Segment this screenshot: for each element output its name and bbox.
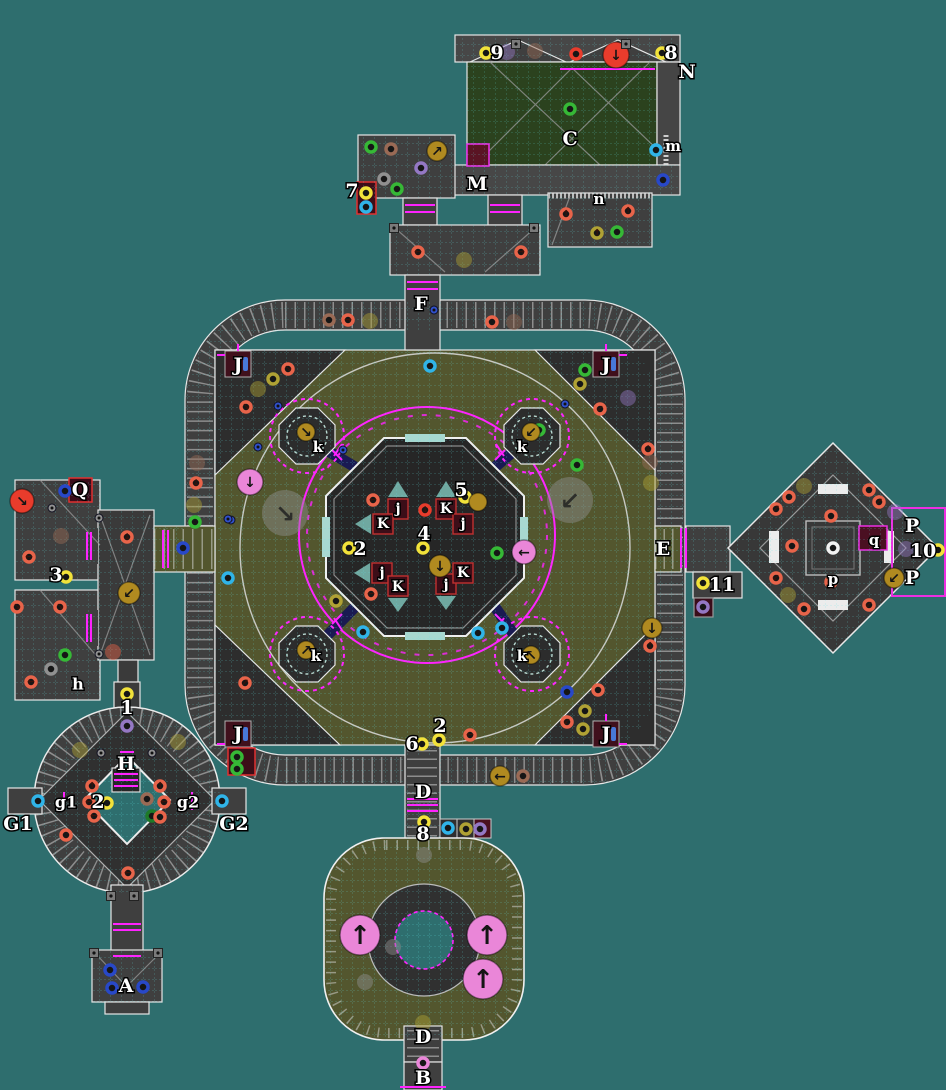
thing-ring-o [826, 511, 836, 521]
thing-ring-o: ↑ [87, 781, 97, 792]
thing-pad-gd: ↓ [429, 555, 451, 577]
svg-text:↑: ↑ [476, 921, 498, 951]
svg-text:↓: ↓ [192, 479, 200, 489]
thing-ring-g [232, 764, 242, 774]
svg-text:↙: ↙ [596, 405, 604, 415]
thing-ghost-br [506, 314, 522, 330]
thing-dot-bd [224, 515, 232, 523]
thing-ring-o: ↑ [645, 641, 655, 652]
svg-text:↘: ↘ [242, 403, 250, 413]
svg-text:↓: ↓ [244, 475, 256, 491]
thing-ring-g [232, 752, 242, 762]
thing-ring-r [571, 49, 581, 59]
map-label-k: k [311, 647, 322, 665]
map-label-9: 9 [490, 42, 503, 64]
thing-dot-bd [430, 306, 438, 314]
map-label-1: 1 [120, 697, 133, 719]
thing-ghost-gy [416, 847, 432, 863]
thing-ring-b [138, 982, 148, 992]
thing-ring-o [784, 492, 794, 502]
map-label-F: F [414, 293, 428, 315]
thing-ring-o: → [343, 315, 353, 326]
map-label-n: n [594, 190, 605, 208]
thing-ring-cy [217, 796, 227, 806]
thing-pad-pk: ↑ [340, 915, 380, 955]
thing-ring-o: ↘ [55, 602, 65, 613]
svg-text:↙: ↙ [888, 571, 900, 587]
thing-dot-bd [339, 446, 347, 454]
thing-ghost-ol [456, 252, 472, 268]
map-label-k: k [517, 438, 528, 456]
thing-ring-o: ↙ [864, 600, 874, 611]
thing-ring-ol: ↑ [592, 228, 602, 239]
thing-ghost-br [642, 454, 658, 470]
thing-knob [390, 224, 399, 233]
thing-ring-ol [331, 596, 341, 606]
thing-ring-o: ↙ [595, 404, 605, 415]
thing-ring-o: ↙ [771, 573, 781, 584]
thing-ring-o: ← [24, 552, 34, 563]
thing-ghost-ol [72, 742, 88, 758]
south-arena-pit [395, 911, 453, 969]
thing-ring-ol [268, 374, 278, 384]
map-label-Q: Q [72, 479, 89, 501]
map-label-2: 2 [91, 791, 104, 813]
map-label-m: m [665, 137, 681, 155]
svg-text:←: ← [160, 798, 168, 808]
map-label-P: P [905, 515, 919, 537]
thing-pad-pk: ← [512, 540, 536, 564]
thing-ring-y [361, 188, 371, 198]
thing-pad-r: ↘ [10, 489, 34, 513]
thing-ring-b [562, 687, 572, 697]
thing-ring-g [612, 227, 622, 237]
thing-ring-o [864, 485, 874, 495]
thing-ring-cy [473, 628, 483, 638]
thing-ring-o [799, 604, 809, 614]
map-label-7: 7 [345, 180, 358, 202]
map-label-C: C [562, 128, 577, 150]
map-label-g1: g1 [55, 793, 77, 812]
map-label-j: j [458, 516, 465, 532]
thing-ring-g [366, 142, 376, 152]
thing-ring-b [178, 543, 188, 553]
map-label-H: H [117, 753, 135, 775]
level-map-viewport: ↗↓↑↑↑←→→↘↘↙↓↘↙←↙↗←←↓↓↓↑↓←←↓↘↙↗↖↘←↓↙↘↘←↑←… [0, 0, 946, 1090]
svg-text:←: ← [518, 545, 530, 561]
thing-ring-cy [443, 823, 453, 833]
svg-text:↘: ↘ [300, 425, 312, 441]
thing-ring-cy [651, 145, 661, 155]
thing-ring-o: → [516, 247, 526, 258]
map-label-k: k [313, 438, 324, 456]
svg-text:↗: ↗ [431, 144, 443, 160]
svg-text:←: ← [369, 496, 377, 506]
svg-text:←: ← [414, 248, 422, 258]
thing-dot-gy [95, 650, 103, 658]
thing-ring-b [658, 175, 668, 185]
thing-ring-g [580, 365, 590, 375]
thing-pad-gd: ↗ [427, 141, 447, 161]
thing-dot-bd [561, 400, 569, 408]
svg-text:↘: ↘ [56, 603, 64, 613]
thing-ghost-ol [362, 313, 378, 329]
a-room-stub [105, 1002, 149, 1014]
thing-ghost-ol [170, 734, 186, 750]
svg-text:↙: ↙ [563, 718, 571, 728]
thing-ring-o: ← [159, 797, 169, 808]
thing-ring-pu [122, 721, 132, 731]
thing-ring-w [828, 543, 838, 553]
thing-ring-cy [223, 573, 233, 583]
svg-text:↓: ↓ [646, 621, 658, 637]
thing-pad-gd: ↙ [118, 582, 140, 604]
svg-text:↗: ↗ [241, 679, 249, 689]
map-label-M: M [466, 173, 487, 195]
thing-pad-gd [469, 493, 487, 511]
thing-ring-b [107, 983, 117, 993]
map-label-h: h [72, 675, 84, 694]
thing-ring-pu [416, 163, 426, 173]
thing-ring-ol [580, 706, 590, 716]
thing-pad-gd: ← [490, 766, 510, 786]
thing-ghost-gy: ↙ [547, 477, 593, 523]
map-label-2: 2 [433, 715, 446, 737]
svg-text:↓: ↓ [644, 445, 652, 455]
neck-to-one-box[interactable] [118, 660, 138, 684]
thing-ghost-ol [186, 497, 202, 513]
thing-ring-o: ↗ [771, 504, 781, 515]
thing-ring-pu [698, 602, 708, 612]
thing-ring-ol [575, 379, 585, 389]
svg-text:→: → [517, 248, 525, 258]
thing-ring-o: ← [26, 677, 36, 688]
thing-ring-g [572, 460, 582, 470]
thing-dot-bd [274, 402, 282, 410]
svg-text:↑: ↑ [646, 642, 654, 652]
map-label-11: 11 [709, 574, 735, 596]
map-label-10: 10 [910, 540, 936, 562]
thing-ring-g [190, 517, 200, 527]
thing-ring-b [60, 486, 70, 496]
svg-text:↗: ↗ [875, 498, 883, 508]
thing-ghost-ol [250, 381, 266, 397]
thing-ghost-gy: ↘ [262, 490, 308, 536]
svg-text:↑: ↑ [472, 965, 494, 995]
thing-ring-b [105, 965, 115, 975]
thing-ghost-ol [796, 478, 812, 494]
thing-ring-gy [379, 174, 389, 184]
thing-ring-o [61, 830, 71, 840]
svg-text:←: ← [124, 869, 132, 879]
thing-dot-gy [97, 749, 105, 757]
thing-ring-ol [578, 724, 588, 734]
svg-text:↑: ↑ [593, 229, 601, 239]
svg-text:←: ← [90, 812, 98, 822]
svg-text:↑: ↑ [624, 207, 632, 217]
svg-text:↓: ↓ [421, 506, 429, 516]
thing-pad-gd: ↙ [884, 568, 904, 588]
thing-dot-gy [48, 504, 56, 512]
svg-text:↙: ↙ [772, 574, 780, 584]
svg-text:↑: ↑ [562, 210, 570, 220]
map-label-G1: G1 [3, 813, 32, 835]
level-map: ↗↓↑↑↑←→→↘↘↙↓↘↙←↙↗←←↓↓↓↑↓←←↓↘↙↗↖↘←↓↙↘↘←↑←… [0, 0, 946, 1090]
svg-text:←: ← [367, 590, 375, 600]
thing-ring-o: ← [123, 868, 133, 879]
thing-ring-g [565, 104, 575, 114]
thing-ring-o [787, 541, 797, 551]
thing-ring-gy [46, 664, 56, 674]
thing-ring-o: ↘ [241, 402, 251, 413]
thing-ghost-ol [780, 587, 796, 603]
map-label-q: q [869, 531, 880, 549]
map-label-j: j [393, 501, 400, 517]
thing-ring-cy [358, 627, 368, 637]
thing-ring-o: ← [368, 495, 378, 506]
thing-ring-o: ↑ [155, 781, 165, 792]
thing-ring-g [492, 548, 502, 558]
map-label-J: J [232, 723, 243, 745]
svg-text:↙: ↙ [123, 586, 135, 602]
thing-ring-o [593, 685, 603, 695]
map-label-8: 8 [664, 42, 677, 64]
map-label-5: 5 [454, 479, 467, 501]
thing-ring-g [60, 650, 70, 660]
thing-ring-o: ↑ [561, 209, 571, 220]
thing-ring-o: ↓ [191, 478, 201, 489]
thing-knob [512, 40, 521, 49]
thing-ghost-pu [620, 390, 636, 406]
thing-ring-br [386, 144, 396, 154]
thing-ghost-pu [887, 504, 903, 520]
map-label-K: K [440, 501, 453, 517]
thing-ring-pu [475, 824, 485, 834]
map-label-J: J [232, 354, 243, 376]
svg-text:↑: ↑ [88, 782, 96, 792]
thing-knob [90, 949, 99, 958]
thing-ghost-o [105, 644, 121, 660]
thing-ghost-gy [357, 974, 373, 990]
thing-ring-cy [425, 361, 435, 371]
thing-ring-g [392, 184, 402, 194]
thing-ring-y [698, 578, 708, 588]
thing-pad-pk: ↑ [463, 959, 503, 999]
svg-text:↘: ↘ [16, 494, 28, 510]
thing-pad-gd: ↓ [642, 618, 662, 638]
svg-text:↙: ↙ [865, 601, 873, 611]
thing-ring-br [324, 315, 334, 325]
map-label-8: 8 [416, 823, 429, 845]
corridor-east-of-m[interactable] [488, 195, 522, 225]
svg-text:↓: ↓ [434, 559, 446, 575]
map-label-J: J [600, 723, 611, 745]
map-label-j: j [441, 577, 448, 593]
map-label-j: j [377, 565, 384, 581]
svg-text:↙: ↙ [560, 487, 580, 515]
thing-ring-cy [361, 202, 371, 212]
thing-ring-br [518, 771, 528, 781]
svg-text:↓: ↓ [610, 48, 622, 64]
svg-text:←: ← [494, 769, 506, 785]
thing-ring-o: ↘ [12, 602, 22, 613]
map-label-N: N [678, 61, 695, 83]
svg-text:↓: ↓ [123, 533, 131, 543]
thing-ring-o: ← [366, 589, 376, 600]
map-label-D: D [415, 1026, 431, 1048]
svg-text:←: ← [466, 731, 474, 741]
thing-pad-pk: ↓ [237, 469, 263, 495]
map-label-A: A [118, 975, 134, 997]
map-label-B: B [415, 1067, 431, 1089]
svg-text:↘: ↘ [284, 365, 292, 375]
e-corridor[interactable] [686, 526, 730, 572]
thing-ghost-br [189, 455, 205, 471]
thing-ring-o: ← [465, 730, 475, 741]
thing-ring-o: ↘ [283, 364, 293, 375]
thing-ring-o: ← [413, 247, 423, 258]
thing-knob [130, 892, 139, 901]
thing-ring-o: ↙ [562, 717, 572, 728]
m-secret-box[interactable] [467, 144, 489, 166]
thing-ring-o: ↗ [874, 497, 884, 508]
thing-ring-o: ↓ [643, 444, 653, 455]
map-label-K: K [392, 579, 405, 595]
svg-text:↑: ↑ [156, 782, 164, 792]
thing-ghost-gy [385, 939, 401, 955]
map-label-4: 4 [417, 523, 430, 545]
map-label-g2: g2 [177, 793, 199, 812]
thing-ring-br [142, 794, 152, 804]
thing-dot-gy [148, 749, 156, 757]
thing-knob [154, 949, 163, 958]
thing-ghost-ol [643, 475, 659, 491]
map-label-K: K [377, 516, 390, 532]
thing-ring-o [487, 317, 497, 327]
thing-ring-o: ↑ [623, 206, 633, 217]
map-label-6: 6 [405, 733, 418, 755]
thing-ring-o [155, 812, 165, 822]
svg-text:←: ← [25, 553, 33, 563]
map-label-K: K [457, 565, 470, 581]
map-label-E: E [656, 538, 670, 560]
thing-ring-o: ↗ [240, 678, 250, 689]
thing-ring-o: ↓ [122, 532, 132, 543]
thing-dot-bd [254, 443, 262, 451]
map-label-D: D [415, 781, 431, 803]
thing-ghost-br [53, 528, 69, 544]
thing-dot-gy [95, 514, 103, 522]
thing-ring-ol [461, 824, 471, 834]
svg-text:↗: ↗ [772, 505, 780, 515]
thing-pad-pk: ↑ [467, 915, 507, 955]
svg-text:←: ← [27, 678, 35, 688]
svg-text:↘: ↘ [275, 500, 295, 528]
map-label-k: k [517, 647, 528, 665]
svg-text:↘: ↘ [13, 603, 21, 613]
svg-text:↑: ↑ [349, 921, 371, 951]
svg-text:→: → [344, 316, 352, 326]
thing-ring-r: ↓ [420, 505, 430, 516]
thing-ring-cy [33, 796, 43, 806]
map-label-3: 3 [49, 564, 62, 586]
thing-ghost-br [527, 43, 543, 59]
thing-knob [107, 892, 116, 901]
map-label-G2: G2 [219, 813, 248, 835]
map-label-P: P [905, 567, 919, 589]
map-label-2: 2 [353, 538, 366, 560]
map-label-p: p [828, 570, 839, 588]
thing-knob [530, 224, 539, 233]
map-label-J: J [600, 354, 611, 376]
thing-ring-cy [497, 623, 507, 633]
thing-knob [622, 40, 631, 49]
